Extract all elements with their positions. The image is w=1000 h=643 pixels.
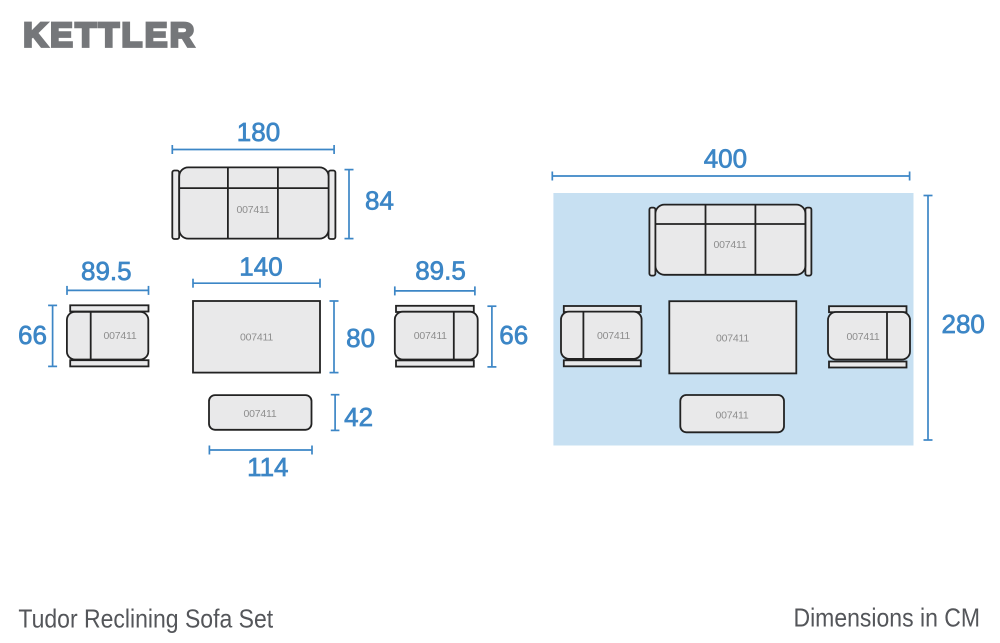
svg-text:66: 66 [499,320,528,350]
svg-text:007411: 007411 [716,332,749,344]
svg-text:89.5: 89.5 [81,256,132,286]
svg-text:66: 66 [18,320,47,350]
svg-text:007411: 007411 [846,331,879,343]
svg-text:140: 140 [239,252,282,282]
svg-text:Tudor Reclining Sofa Set: Tudor Reclining Sofa Set [18,605,273,634]
svg-text:114: 114 [247,452,288,482]
svg-text:007411: 007411 [597,330,630,342]
svg-text:Dimensions in CM: Dimensions in CM [793,604,980,633]
svg-text:007411: 007411 [243,408,276,420]
svg-text:007411: 007411 [103,330,136,342]
svg-text:007411: 007411 [713,239,746,251]
svg-text:80: 80 [346,323,375,353]
svg-text:007411: 007411 [236,204,269,216]
svg-text:007411: 007411 [240,332,273,344]
svg-text:007411: 007411 [414,330,447,342]
svg-text:42: 42 [344,402,373,432]
svg-text:400: 400 [704,144,747,174]
svg-text:KETTLER: KETTLER [23,17,197,55]
svg-text:180: 180 [237,117,280,147]
svg-text:89.5: 89.5 [415,256,466,286]
svg-text:280: 280 [942,309,985,339]
svg-text:84: 84 [365,186,394,216]
svg-text:007411: 007411 [715,409,748,421]
